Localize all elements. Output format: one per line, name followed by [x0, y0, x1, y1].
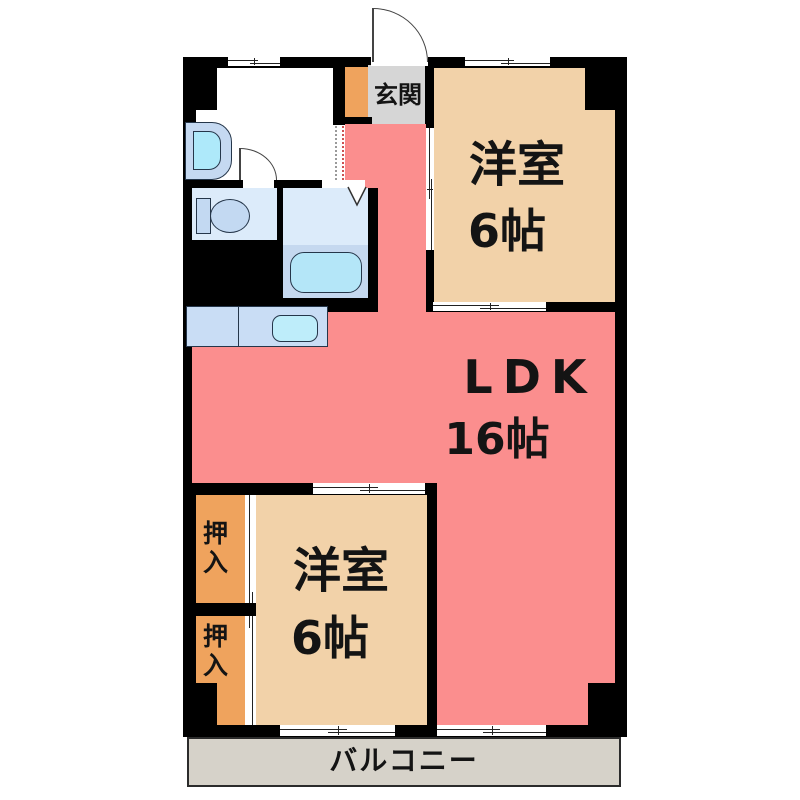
label-genkan: 玄関	[374, 83, 422, 107]
label-ldk: LDK	[463, 354, 596, 400]
floor-plan-canvas: 玄関 洋室 6帖 LDK 16帖 押入 押入	[0, 0, 800, 800]
wall-pillar-bottom-right	[588, 683, 615, 727]
bathtub-icon	[290, 252, 362, 293]
label-ldk-size: 16帖	[444, 418, 549, 462]
hall-lower	[378, 188, 426, 312]
room-western-bottom	[256, 495, 427, 725]
shoe-cabinet	[345, 67, 368, 120]
label-closet-upper: 押入	[202, 520, 227, 578]
window-icon-ldk	[437, 725, 546, 736]
sliding-door-icon-top-room	[426, 128, 434, 250]
wall-pillar-top-right	[585, 67, 615, 110]
label-western-bottom: 洋室	[293, 547, 389, 595]
entrance-door-leaf	[372, 8, 374, 62]
wall-closet-divider	[183, 603, 256, 616]
label-balcony: バルコニー	[329, 747, 478, 775]
sliding-door-icon-bottom-room-north	[313, 483, 425, 494]
toilet-doorway	[243, 180, 274, 188]
wall-corner-top-left	[183, 57, 217, 110]
hall-upper	[345, 124, 426, 188]
window-icon-washroom	[228, 57, 280, 66]
kitchen-counter-divider	[238, 306, 239, 347]
ldk-boundary-dotted-line	[342, 126, 344, 180]
label-western-top: 洋室	[469, 141, 565, 189]
entrance-door-arc-icon	[373, 8, 428, 62]
label-western-bottom-size: 6帖	[291, 615, 369, 661]
interior-door-leaf	[239, 148, 241, 180]
wall-washroom-genkan	[333, 57, 345, 125]
wall-corner-bottom-left	[183, 683, 217, 737]
label-closet-lower: 押入	[202, 623, 227, 681]
label-western-top-size: 6帖	[468, 208, 546, 254]
window-icon-bottom-room	[280, 725, 395, 736]
toilet-tank-icon	[196, 198, 211, 234]
toilet-icon	[210, 199, 250, 233]
hall-boundary-dotted-line	[335, 126, 337, 180]
kitchen-sink-icon	[272, 315, 318, 342]
washbasin-bowl-icon	[193, 131, 221, 170]
window-icon-top-room	[465, 57, 550, 66]
sliding-door-icon-top-room-south	[433, 302, 546, 311]
bath-folding-door-icon	[346, 186, 368, 208]
